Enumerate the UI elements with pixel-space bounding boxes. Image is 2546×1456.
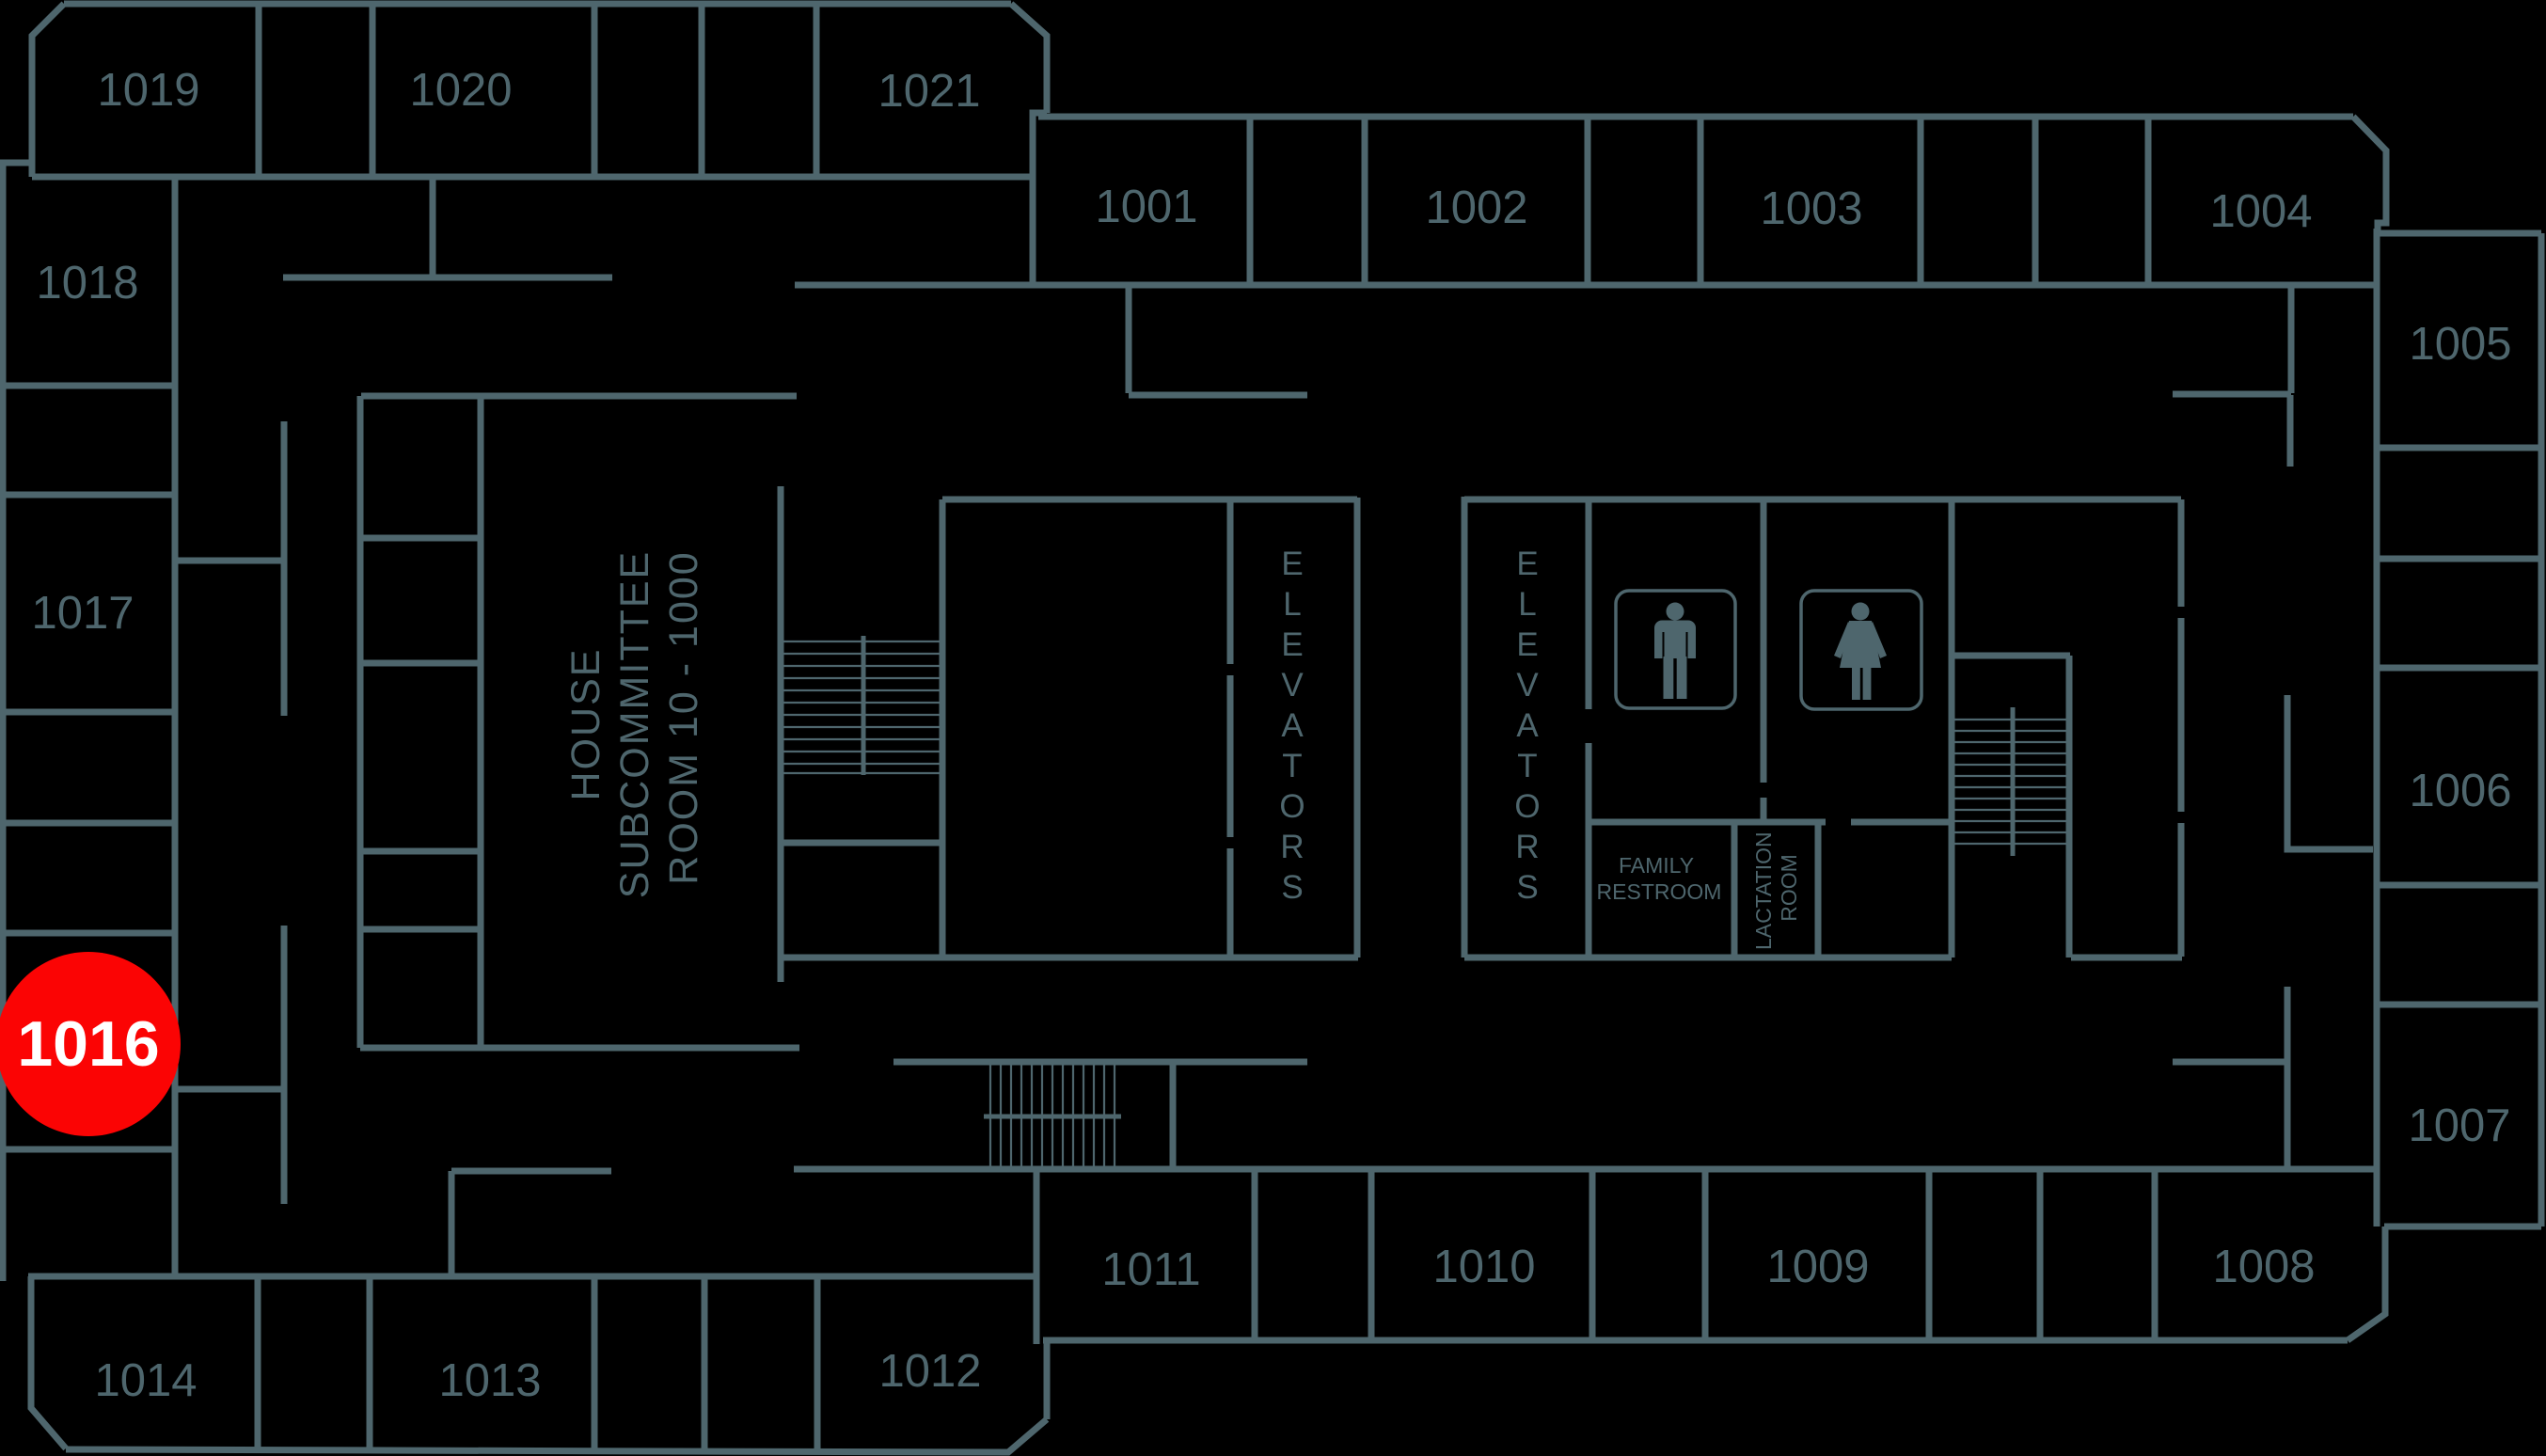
svg-text:1008: 1008 bbox=[2212, 1242, 2315, 1292]
svg-text:1010: 1010 bbox=[1432, 1242, 1535, 1292]
svg-text:1020: 1020 bbox=[409, 65, 512, 116]
svg-text:1005: 1005 bbox=[2409, 319, 2511, 370]
svg-text:1018: 1018 bbox=[36, 258, 138, 309]
svg-text:1003: 1003 bbox=[1760, 183, 1862, 234]
svg-text:1006: 1006 bbox=[2409, 766, 2511, 816]
svg-text:1007: 1007 bbox=[2408, 1100, 2510, 1151]
svg-text:1021: 1021 bbox=[878, 66, 980, 117]
svg-text:1002: 1002 bbox=[1425, 182, 1527, 233]
svg-text:1011: 1011 bbox=[1101, 1244, 1200, 1295]
svg-text:1012: 1012 bbox=[878, 1346, 981, 1397]
svg-text:1019: 1019 bbox=[97, 65, 199, 116]
svg-text:1009: 1009 bbox=[1766, 1242, 1869, 1292]
svg-text:ELEVATORS: ELEVATORS bbox=[1279, 546, 1305, 906]
svg-text:1001: 1001 bbox=[1095, 182, 1197, 232]
svg-text:1004: 1004 bbox=[2209, 186, 2312, 237]
svg-text:1016: 1016 bbox=[17, 1008, 159, 1080]
svg-text:1014: 1014 bbox=[94, 1355, 197, 1406]
svg-text:1017: 1017 bbox=[31, 588, 134, 639]
svg-text:ELEVATORS: ELEVATORS bbox=[1514, 546, 1540, 906]
svg-text:1013: 1013 bbox=[438, 1355, 541, 1406]
